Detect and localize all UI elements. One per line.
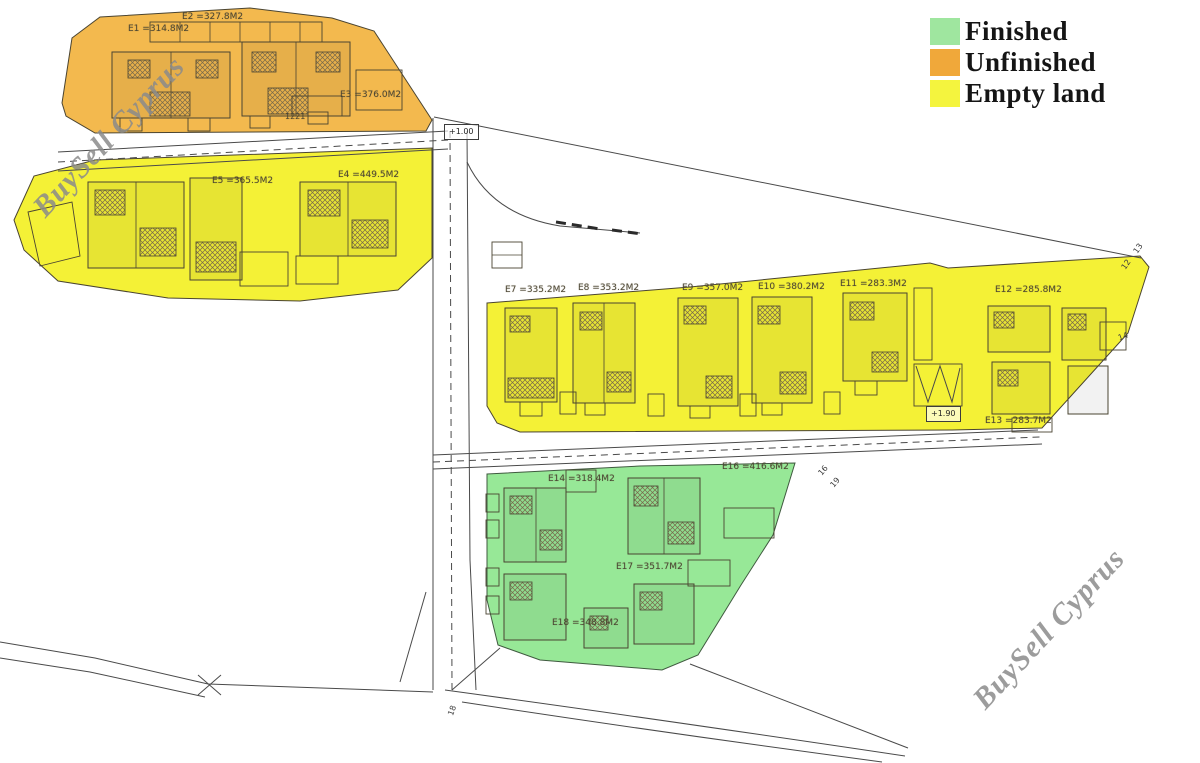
plot-label-e11: E11 =283.3M2: [840, 279, 907, 289]
legend-row-finished: Finished: [930, 18, 1106, 45]
empty-land-swatch: [930, 80, 960, 107]
plot-label-e2: E2 =327.8M2: [182, 12, 243, 22]
plot-label-e3: E3 =376.0M2: [340, 90, 401, 100]
elevation-box-mid: +1.90: [926, 406, 961, 422]
plot-label-e12: E12 =285.8M2: [995, 285, 1062, 295]
legend-label-unfinished: Unfinished: [965, 49, 1096, 76]
plot-label-e9: E9 =357.0M2: [682, 283, 743, 293]
plot-label-e1: E1 =314.8M2: [128, 24, 189, 34]
plot-label-e14: E14 =318.4M2: [548, 474, 615, 484]
unfinished-swatch: [930, 49, 960, 76]
finished-swatch: [930, 18, 960, 45]
plot-label-e5: E5 =365.5M2: [212, 176, 273, 186]
scan-smudge: [556, 222, 642, 234]
legend: Finished Unfinished Empty land: [930, 18, 1106, 111]
plot-label-e16: E16 =416.6M2: [722, 462, 789, 472]
plot-label-e17: E17 =351.7M2: [616, 562, 683, 572]
plot-label-e8: E8 =353.2M2: [578, 283, 639, 293]
legend-row-empty-land: Empty land: [930, 80, 1106, 107]
legend-label-finished: Finished: [965, 18, 1068, 45]
site-plan: E1 =314.8M2 E2 =327.8M2 E3 =376.0M2 E5 =…: [0, 0, 1200, 763]
plot-label-e10: E10 =380.2M2: [758, 282, 825, 292]
plot-label-e18: E18 =348.8M2: [552, 618, 619, 628]
elevation-box-top: +1.00: [444, 124, 479, 140]
legend-label-empty-land: Empty land: [965, 80, 1106, 107]
plot-label-e4: E4 =449.5M2: [338, 170, 399, 180]
plot-label-e7: E7 =335.2M2: [505, 285, 566, 295]
legend-row-unfinished: Unfinished: [930, 49, 1106, 76]
plot-label-e13: E13 =283.7M2: [985, 416, 1052, 426]
plot-label-1221: 1221: [285, 112, 305, 121]
